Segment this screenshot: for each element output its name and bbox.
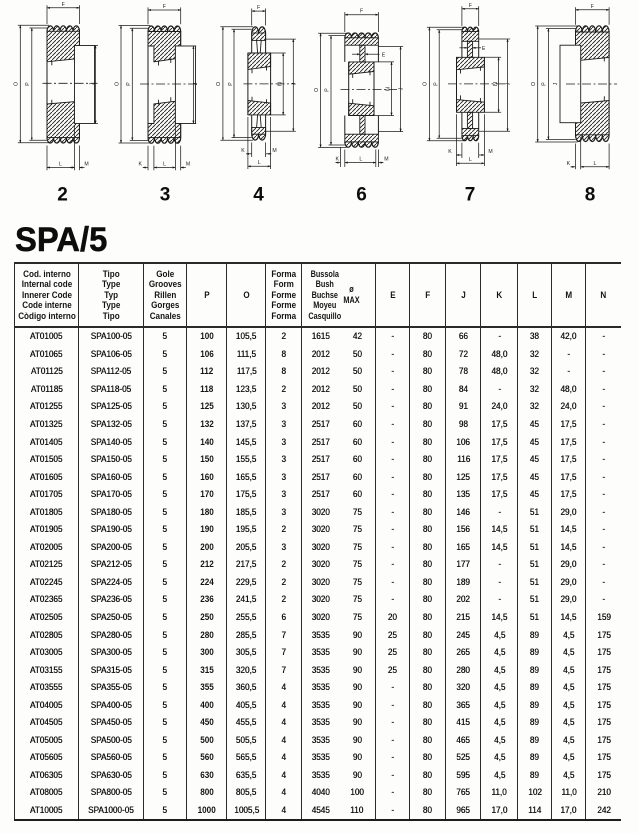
svg-text:8: 8 [585,185,596,206]
svg-text:E: E [382,52,386,58]
svg-text:K: K [448,149,452,155]
svg-text:J: J [506,82,512,85]
svg-text:F: F [591,4,594,10]
svg-text:2: 2 [57,185,68,206]
svg-text:F: F [469,3,472,9]
svg-text:M: M [384,156,388,162]
svg-text:N: N [386,87,392,91]
svg-text:O: O [314,88,320,92]
svg-text:F: F [257,5,260,11]
svg-text:J: J [291,82,297,85]
svg-text:L: L [163,161,166,167]
svg-text:O: O [531,82,537,86]
svg-text:P: P [434,82,440,86]
svg-text:F: F [62,2,65,8]
svg-text:J: J [553,82,559,85]
svg-text:J: J [90,82,96,85]
svg-text:P: P [126,82,132,86]
svg-text:7: 7 [465,185,476,206]
svg-text:M: M [186,161,190,167]
svg-text:M: M [272,148,276,154]
svg-text:O: O [216,82,222,86]
svg-text:P: P [542,82,548,86]
svg-text:N: N [493,82,499,86]
svg-text:L: L [258,160,261,166]
svg-text:6: 6 [356,185,367,206]
svg-text:E: E [482,46,486,52]
svg-text:L: L [359,156,362,162]
svg-text:4: 4 [253,185,264,206]
svg-text:J: J [193,82,199,85]
svg-text:O: O [114,82,120,86]
svg-text:P: P [25,82,31,86]
svg-text:L: L [59,161,62,167]
svg-text:3: 3 [160,185,171,206]
svg-text:J: J [399,87,405,90]
svg-text:K: K [241,148,245,154]
svg-text:M: M [488,149,492,155]
svg-text:L: L [469,157,472,163]
svg-text:P: P [228,82,234,86]
svg-text:K: K [335,156,339,162]
svg-text:O: O [14,82,20,86]
svg-text:M: M [84,161,88,167]
svg-text:P: P [324,88,330,92]
svg-text:O: O [423,82,429,86]
svg-text:F: F [163,4,166,10]
svg-text:L: L [594,161,597,167]
svg-text:N: N [277,82,283,86]
svg-text:F: F [360,9,363,15]
svg-text:K: K [567,161,571,167]
svg-text:K: K [138,161,142,167]
